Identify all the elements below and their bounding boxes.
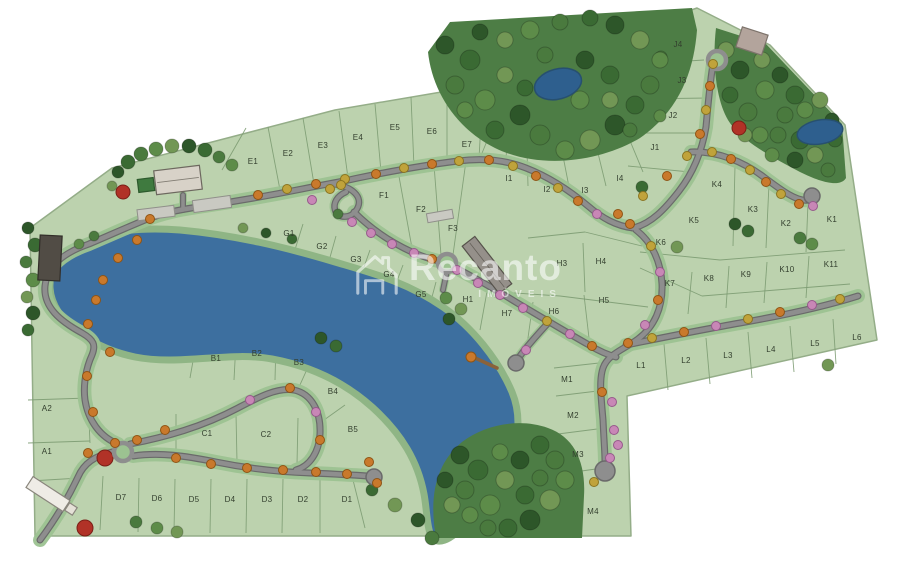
lot-label-K7: K7: [665, 279, 676, 288]
lot-label-E4: E4: [353, 133, 364, 142]
tree-icon: [121, 155, 135, 169]
lot-label-D3: D3: [262, 495, 273, 504]
lot-label-K6: K6: [656, 238, 667, 247]
west-barn-building: [38, 235, 62, 281]
orange-flowering-tree-icon: [663, 172, 672, 181]
pink-flowering-tree-icon: [606, 454, 615, 463]
lot-label-G2: G2: [316, 242, 328, 251]
lot-label-B1: B1: [211, 354, 222, 363]
lot-label-K4: K4: [712, 180, 723, 189]
lot-label-A1: A1: [42, 447, 53, 456]
lot-label-K10: K10: [779, 265, 794, 274]
orange-flowering-tree-icon: [372, 170, 381, 179]
tree-icon: [652, 52, 668, 68]
lot-label-B3: B3: [294, 358, 305, 367]
tree-icon: [772, 67, 788, 83]
tree-icon: [556, 141, 574, 159]
tree-icon: [112, 166, 124, 178]
pink-flowering-tree-icon: [367, 229, 376, 238]
tree-icon: [165, 139, 179, 153]
tree-icon: [468, 460, 488, 480]
lot-label-E2: E2: [283, 149, 294, 158]
tree-icon: [26, 306, 40, 320]
tree-icon: [443, 313, 455, 325]
lot-label-I3: I3: [581, 186, 589, 195]
lot-label-B5: B5: [348, 425, 359, 434]
tree-icon: [475, 90, 495, 110]
tree-icon: [511, 451, 529, 469]
tree-icon: [510, 105, 530, 125]
orange-flowering-tree-icon: [279, 466, 288, 475]
orange-flowering-tree-icon: [696, 130, 705, 139]
lot-label-K8: K8: [704, 274, 715, 283]
yellow-flowering-tree-icon: [326, 185, 335, 194]
sport-court-building: [137, 178, 154, 193]
lot-label-M2: M2: [567, 411, 579, 420]
yellow-flowering-tree-icon: [543, 317, 552, 326]
lot-label-I1: I1: [505, 174, 513, 183]
orange-flowering-tree-icon: [133, 236, 142, 245]
orange-flowering-tree-icon: [624, 339, 633, 348]
pink-flowering-tree-icon: [519, 304, 528, 313]
pink-flowering-tree-icon: [496, 291, 505, 300]
orange-flowering-tree-icon: [89, 408, 98, 417]
lot-label-L4: L4: [766, 345, 776, 354]
pink-flowering-tree-icon: [809, 202, 818, 211]
lot-label-G1: G1: [283, 229, 295, 238]
tree-icon: [496, 471, 514, 489]
lot-label-L3: L3: [723, 351, 733, 360]
tree-icon: [134, 147, 148, 161]
yellow-flowering-tree-icon: [337, 181, 346, 190]
tree-icon: [333, 209, 343, 219]
lot-label-H7: H7: [502, 309, 513, 318]
pink-flowering-tree-icon: [656, 268, 665, 277]
tree-icon: [213, 151, 225, 163]
tree-icon: [606, 16, 624, 34]
lot-label-H1: H1: [463, 295, 474, 304]
tree-icon: [631, 31, 649, 49]
yellow-flowering-tree-icon: [836, 295, 845, 304]
lot-label-E7: E7: [462, 140, 473, 149]
tree-icon: [411, 513, 425, 527]
tree-icon: [582, 10, 598, 26]
tree-icon: [437, 472, 453, 488]
tree-icon: [521, 21, 539, 39]
tree-icon: [794, 232, 806, 244]
lot-label-G3: G3: [350, 255, 362, 264]
orange-flowering-tree-icon: [598, 388, 607, 397]
tree-icon: [149, 142, 163, 156]
lot-label-H6: H6: [549, 307, 560, 316]
pink-flowering-tree-icon: [474, 279, 483, 288]
lot-label-K11: K11: [824, 260, 839, 269]
yellow-flowering-tree-icon: [554, 184, 563, 193]
yellow-flowering-tree-icon: [777, 190, 786, 199]
lot-label-M3: M3: [572, 450, 584, 459]
lot-label-I4: I4: [616, 174, 624, 183]
tree-icon: [444, 497, 460, 513]
yellow-flowering-tree-icon: [709, 60, 718, 69]
orange-flowering-tree-icon: [161, 426, 170, 435]
lot-label-D7: D7: [116, 493, 127, 502]
red-tree-icon: [732, 121, 746, 135]
orange-flowering-tree-icon: [466, 352, 476, 362]
pink-flowering-tree-icon: [808, 301, 817, 310]
tree-icon: [821, 163, 835, 177]
orange-flowering-tree-icon: [99, 276, 108, 285]
tree-icon: [446, 76, 464, 94]
tree-icon: [556, 471, 574, 489]
lot-label-C1: C1: [202, 429, 213, 438]
tree-icon: [455, 303, 467, 315]
lot-label-D6: D6: [152, 494, 163, 503]
tree-icon: [786, 86, 804, 104]
lot-label-K3: K3: [748, 205, 759, 214]
tree-icon: [517, 80, 533, 96]
tree-icon: [497, 67, 513, 83]
tree-icon: [516, 486, 534, 504]
tree-icon: [626, 96, 644, 114]
lot-label-C2: C2: [261, 430, 272, 439]
tree-icon: [731, 61, 749, 79]
tree-icon: [89, 231, 99, 241]
yellow-flowering-tree-icon: [283, 185, 292, 194]
tree-icon: [752, 127, 768, 143]
site-plan-map: A1A2B1B2B3B4B5C1C2D1D2D3D4D5D6D7E1E2E3E4…: [0, 0, 900, 571]
orange-flowering-tree-icon: [92, 296, 101, 305]
lot-label-K5: K5: [689, 216, 700, 225]
tree-icon: [729, 218, 741, 230]
orange-flowering-tree-icon: [343, 470, 352, 479]
pink-flowering-tree-icon: [348, 218, 357, 227]
tree-icon: [546, 451, 564, 469]
lot-label-L5: L5: [810, 339, 820, 348]
tree-icon: [602, 92, 618, 108]
tree-icon: [807, 147, 823, 163]
tree-icon: [671, 241, 683, 253]
cul-de-sac: [595, 461, 615, 481]
lot-label-K1: K1: [827, 215, 838, 224]
tree-icon: [601, 66, 619, 84]
tree-icon: [21, 291, 33, 303]
orange-flowering-tree-icon: [626, 220, 635, 229]
orange-flowering-tree-icon: [588, 342, 597, 351]
orange-flowering-tree-icon: [207, 460, 216, 469]
tree-icon: [623, 123, 637, 137]
pink-flowering-tree-icon: [388, 240, 397, 249]
tree-icon: [605, 115, 625, 135]
pink-flowering-tree-icon: [641, 321, 650, 330]
yellow-flowering-tree-icon: [639, 192, 648, 201]
pink-flowering-tree-icon: [608, 398, 617, 407]
pink-flowering-tree-icon: [610, 426, 619, 435]
orange-flowering-tree-icon: [574, 197, 583, 206]
lot-label-F3: F3: [448, 224, 458, 233]
tree-icon: [641, 76, 659, 94]
yellow-flowering-tree-icon: [509, 162, 518, 171]
tree-icon: [472, 24, 488, 40]
orange-flowering-tree-icon: [762, 178, 771, 187]
orange-flowering-tree-icon: [428, 160, 437, 169]
lot-label-J2: J2: [668, 111, 677, 120]
lot-label-D5: D5: [189, 495, 200, 504]
pink-flowering-tree-icon: [522, 346, 531, 355]
lot-label-I2: I2: [543, 185, 551, 194]
yellow-flowering-tree-icon: [400, 164, 409, 173]
tree-icon: [530, 125, 550, 145]
tree-icon: [457, 102, 473, 118]
orange-flowering-tree-icon: [312, 180, 321, 189]
orange-flowering-tree-icon: [243, 464, 252, 473]
yellow-flowering-tree-icon: [702, 106, 711, 115]
tree-icon: [440, 292, 452, 304]
pink-flowering-tree-icon: [614, 441, 623, 450]
orange-flowering-tree-icon: [485, 156, 494, 165]
orange-flowering-tree-icon: [286, 384, 295, 393]
yellow-flowering-tree-icon: [683, 152, 692, 161]
lot-label-H5: H5: [599, 296, 610, 305]
orange-flowering-tree-icon: [795, 200, 804, 209]
tree-icon: [654, 110, 666, 122]
tree-icon: [822, 359, 834, 371]
orange-flowering-tree-icon: [365, 458, 374, 467]
lot-label-L2: L2: [681, 356, 691, 365]
orange-flowering-tree-icon: [776, 308, 785, 317]
orange-flowering-tree-icon: [111, 439, 120, 448]
tree-icon: [492, 444, 508, 460]
tree-icon: [425, 531, 439, 545]
tree-icon: [765, 148, 779, 162]
tree-icon: [576, 51, 594, 69]
tree-icon: [537, 47, 553, 63]
pink-flowering-tree-icon: [308, 196, 317, 205]
tree-icon: [540, 490, 560, 510]
orange-flowering-tree-icon: [133, 436, 142, 445]
orange-flowering-tree-icon: [84, 449, 93, 458]
tree-icon: [739, 103, 757, 121]
tree-icon: [552, 14, 568, 30]
tree-icon: [722, 87, 738, 103]
tree-icon: [480, 520, 496, 536]
pink-flowering-tree-icon: [312, 408, 321, 417]
tree-icon: [198, 143, 212, 157]
lot-label-M4: M4: [587, 507, 599, 516]
tree-icon: [238, 223, 248, 233]
lot-label-M1: M1: [561, 375, 573, 384]
tree-icon: [580, 130, 600, 150]
yellow-flowering-tree-icon: [648, 334, 657, 343]
lot-label-H3: H3: [557, 259, 568, 268]
tree-icon: [182, 139, 196, 153]
tree-icon: [480, 495, 500, 515]
lot-label-B2: B2: [252, 349, 263, 358]
orange-flowering-tree-icon: [114, 254, 123, 263]
yellow-flowering-tree-icon: [647, 242, 656, 251]
orange-flowering-tree-icon: [316, 436, 325, 445]
lot-label-D2: D2: [298, 495, 309, 504]
site-plan-svg: A1A2B1B2B3B4B5C1C2D1D2D3D4D5D6D7E1E2E3E4…: [0, 0, 900, 571]
orange-flowering-tree-icon: [654, 296, 663, 305]
lot-label-F1: F1: [379, 191, 389, 200]
pink-flowering-tree-icon: [453, 266, 462, 275]
lot-label-E1: E1: [248, 157, 259, 166]
tree-icon: [436, 36, 454, 54]
tree-icon: [499, 519, 517, 537]
tree-icon: [171, 526, 183, 538]
tree-icon: [756, 81, 774, 99]
yellow-flowering-tree-icon: [455, 157, 464, 166]
tree-icon: [226, 159, 238, 171]
orange-flowering-tree-icon: [614, 210, 623, 219]
pink-flowering-tree-icon: [246, 396, 255, 405]
tree-icon: [812, 92, 828, 108]
lot-label-D1: D1: [342, 495, 353, 504]
orange-flowering-tree-icon: [373, 479, 382, 488]
orange-flowering-tree-icon: [532, 172, 541, 181]
tree-icon: [531, 436, 549, 454]
tree-icon: [22, 324, 34, 336]
lot-label-B4: B4: [328, 387, 339, 396]
orange-flowering-tree-icon: [706, 82, 715, 91]
lot-label-G5: G5: [415, 290, 427, 299]
red-tree-icon: [77, 520, 93, 536]
tree-icon: [462, 507, 478, 523]
orange-flowering-tree-icon: [254, 191, 263, 200]
tree-icon: [520, 510, 540, 530]
orange-flowering-tree-icon: [428, 255, 437, 264]
yellow-flowering-tree-icon: [708, 148, 717, 157]
orange-flowering-tree-icon: [727, 155, 736, 164]
orange-flowering-tree-icon: [312, 468, 321, 477]
tree-icon: [261, 228, 271, 238]
lot-label-G4: G4: [383, 270, 395, 279]
lot-label-L1: L1: [636, 361, 646, 370]
tree-icon: [388, 498, 402, 512]
pink-flowering-tree-icon: [712, 322, 721, 331]
tree-icon: [315, 332, 327, 344]
tree-icon: [460, 50, 480, 70]
yellow-flowering-tree-icon: [590, 478, 599, 487]
tree-icon: [74, 239, 84, 249]
tree-icon: [777, 107, 793, 123]
lot-label-E3: E3: [318, 141, 329, 150]
tree-icon: [451, 446, 469, 464]
tree-icon: [456, 481, 474, 499]
red-tree-icon: [116, 185, 130, 199]
orange-flowering-tree-icon: [84, 320, 93, 329]
yellow-flowering-tree-icon: [746, 166, 755, 175]
tree-icon: [20, 256, 32, 268]
orange-flowering-tree-icon: [146, 215, 155, 224]
lot-label-F2: F2: [416, 205, 426, 214]
lot-label-J1: J1: [650, 143, 659, 152]
tree-icon: [742, 225, 754, 237]
tree-icon: [787, 152, 803, 168]
tree-icon: [770, 127, 786, 143]
pink-flowering-tree-icon: [593, 210, 602, 219]
orange-flowering-tree-icon: [172, 454, 181, 463]
lot-label-K9: K9: [741, 270, 752, 279]
orange-flowering-tree-icon: [83, 372, 92, 381]
tree-icon: [22, 222, 34, 234]
tree-icon: [330, 340, 342, 352]
lot-label-L6: L6: [852, 333, 862, 342]
orange-flowering-tree-icon: [106, 348, 115, 357]
cul-de-sac: [508, 355, 524, 371]
lot-label-E6: E6: [427, 127, 438, 136]
tree-icon: [532, 470, 548, 486]
lot-label-E5: E5: [390, 123, 401, 132]
lot-label-K2: K2: [781, 219, 792, 228]
tree-icon: [151, 522, 163, 534]
tree-icon: [486, 121, 504, 139]
lot-label-J4: J4: [673, 40, 682, 49]
lot-label-D4: D4: [225, 495, 236, 504]
pink-flowering-tree-icon: [410, 249, 419, 258]
tree-icon: [107, 181, 117, 191]
tree-icon: [497, 32, 513, 48]
lot-label-J3: J3: [677, 76, 686, 85]
pink-flowering-tree-icon: [566, 330, 575, 339]
tree-icon: [797, 102, 813, 118]
yellow-flowering-tree-icon: [744, 315, 753, 324]
tree-icon: [130, 516, 142, 528]
lot-label-A2: A2: [42, 404, 53, 413]
tree-icon: [806, 238, 818, 250]
orange-flowering-tree-icon: [680, 328, 689, 337]
red-tree-icon: [97, 450, 113, 466]
lot-label-H4: H4: [596, 257, 607, 266]
